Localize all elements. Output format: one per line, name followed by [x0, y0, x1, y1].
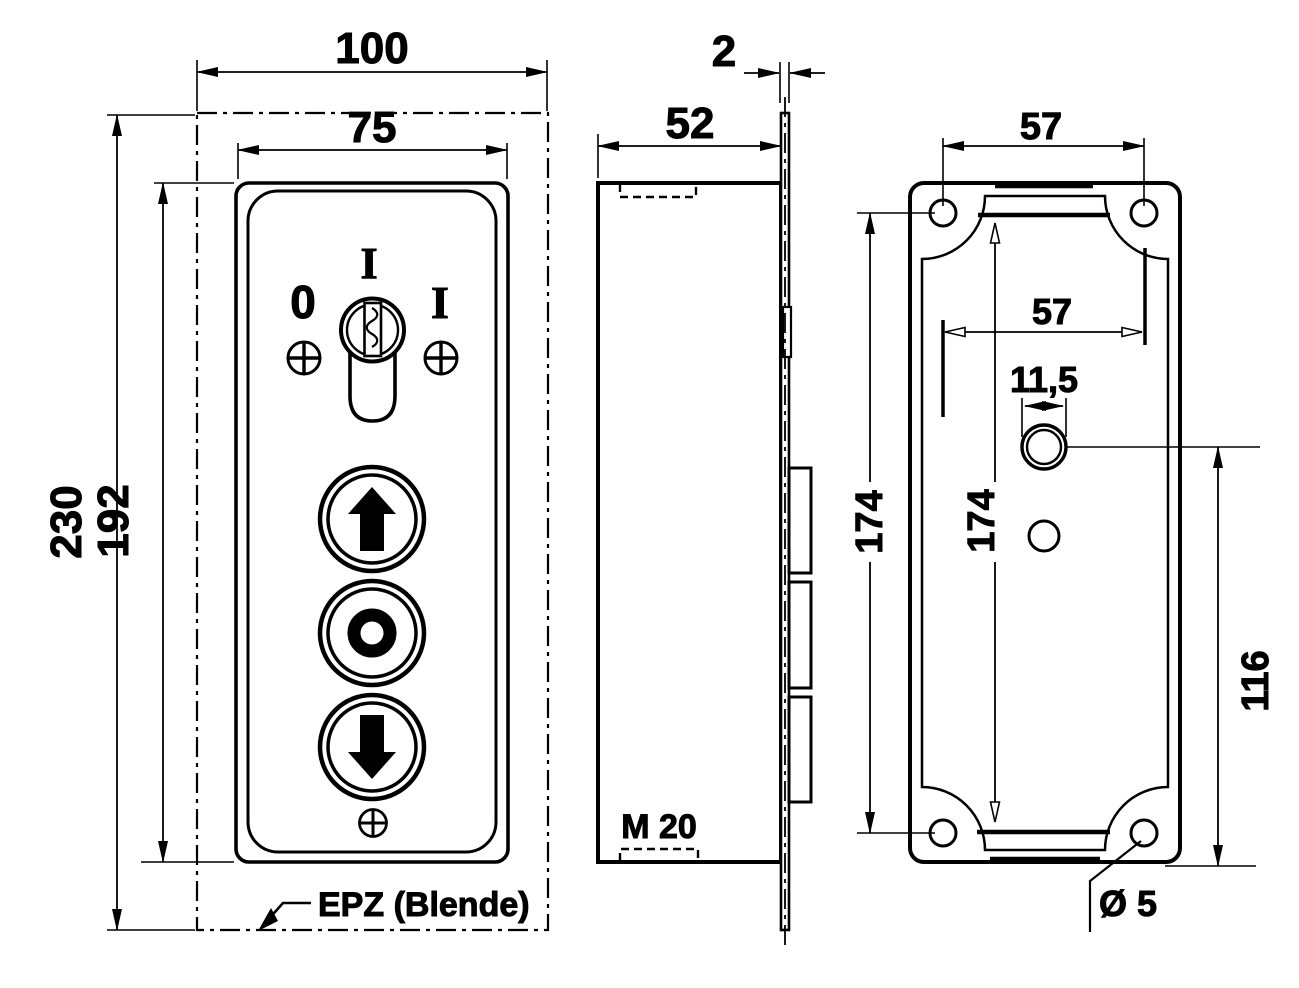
gland-label: M 20 — [621, 808, 697, 846]
stop-button — [320, 581, 424, 685]
dim-hole-offset-label: 116 — [1235, 650, 1277, 711]
up-button-side — [789, 468, 811, 573]
stop-button-side — [789, 582, 811, 688]
key-switch-technical-drawing: I 0 I — [0, 0, 1299, 988]
key-position-on-label: I — [431, 277, 449, 328]
key-position-off-label: 0 — [290, 276, 316, 328]
back-view: 57 57 174 174 11,5 — [849, 106, 1277, 932]
pilot-hole — [1029, 521, 1059, 551]
screw-bottom — [360, 810, 387, 837]
dim-inner-h-label: 174 — [961, 489, 1003, 552]
cover-label: EPZ (Blende) — [318, 886, 530, 924]
dim-plate-thickness-label: 2 — [712, 27, 736, 76]
gland-hole-outer — [1022, 425, 1066, 469]
cover-callout — [258, 903, 311, 931]
dim-hole-spacing-h-label: 174 — [849, 490, 891, 553]
screw-left — [288, 342, 320, 374]
dim-overall-width-label: 100 — [335, 24, 408, 73]
technical-drawing-page: I 0 I — [0, 0, 1299, 988]
dim-panel-width-label: 75 — [348, 103, 397, 152]
down-button-side — [789, 697, 811, 802]
screw-right — [425, 342, 457, 374]
side-view: M 20 52 2 — [598, 27, 825, 947]
up-button — [320, 467, 424, 571]
dim-inner-w-label: 57 — [1032, 291, 1072, 332]
corner-hole-bottom-right — [1131, 820, 1157, 846]
down-button — [320, 695, 424, 799]
dim-plate-thickness — [744, 62, 825, 103]
enclosure-side-outline — [598, 183, 781, 862]
stop-button-bezel — [320, 581, 424, 685]
dim-screw-hole-label: Ø 5 — [1099, 883, 1157, 924]
dim-panel-height-label: 192 — [89, 484, 138, 557]
key-position-top-label: I — [360, 239, 377, 288]
dim-gland-dia-label: 11,5 — [1010, 359, 1078, 400]
dim-panel-height — [141, 183, 234, 862]
dim-depth-label: 52 — [666, 99, 715, 148]
dim-overall-height-label: 230 — [42, 485, 91, 558]
front-view: I 0 I — [42, 24, 548, 931]
dim-hole-spacing-w-label: 57 — [1020, 106, 1062, 148]
